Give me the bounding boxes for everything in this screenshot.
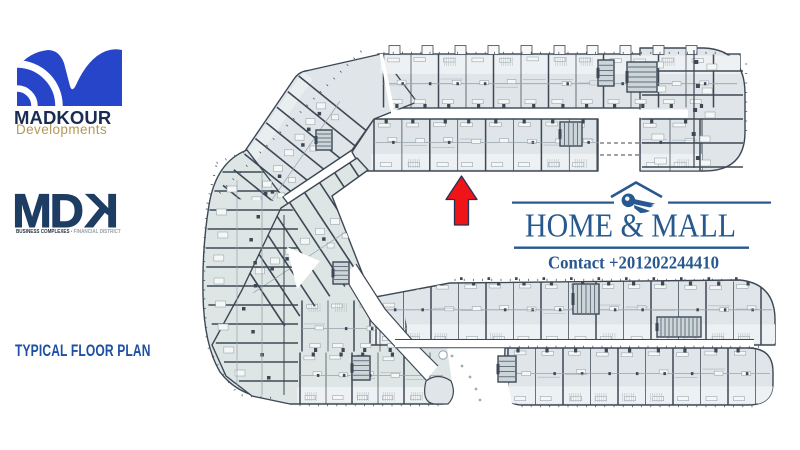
svg-text:HOME & MALL: HOME & MALL (525, 208, 736, 245)
svg-text:Contact +201202244410: Contact +201202244410 (548, 253, 719, 273)
